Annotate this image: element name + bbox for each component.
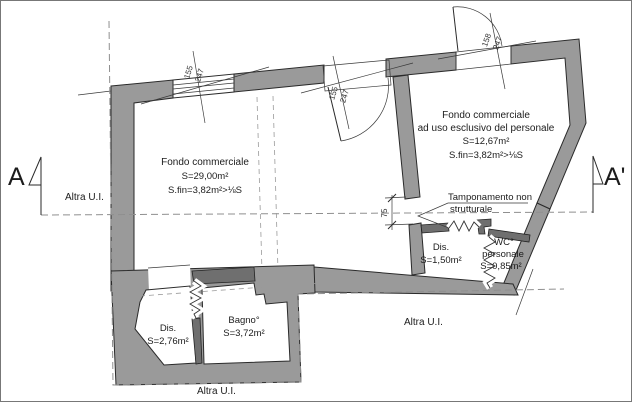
dim-wall-gap: 75 — [380, 208, 389, 217]
trace-line-vertical-2 — [273, 96, 278, 271]
wc-area: S=0,85m² — [480, 261, 521, 272]
trace-line-vertical-1 — [257, 97, 262, 272]
wall-extension-line — [78, 91, 111, 95]
room2-subtitle: ad uso esclusivo del personale — [418, 123, 555, 134]
dis2-area: S=2,76m² — [147, 336, 188, 347]
dis1-area: S=1,50m² — [420, 255, 461, 266]
tamponamento-line1: Tamponamento non — [448, 192, 532, 203]
bagno-name: Bagno° — [228, 315, 259, 326]
wall-top-between-rooms — [386, 52, 456, 77]
dim-door-staff-height: 247 — [491, 35, 504, 51]
tamponamento-line2: strutturale — [450, 204, 492, 215]
wall-west-topleft — [111, 80, 173, 291]
altra-ui-bottom: Altra U.I. — [197, 386, 236, 397]
room2-sfin: S.fin=3,82m²>⅛S — [449, 150, 523, 161]
section-label-a-prime: A' — [604, 163, 625, 191]
section-label-a: A — [8, 163, 25, 191]
wc-subtitle: personale — [482, 249, 524, 260]
section-marker-aprime-triangle — [593, 156, 603, 184]
bagno-area: S=3,72m² — [223, 328, 264, 339]
wall-dis1-north — [421, 223, 449, 233]
room2-name: Fondo commerciale — [442, 110, 530, 121]
dis2-name: Dis. — [160, 323, 176, 334]
wall-top-mid — [234, 65, 324, 92]
room2-area: S=12,67m² — [463, 136, 510, 147]
altra-ui-left: Altra U.I. — [65, 192, 104, 203]
dis1-name: Dis. — [433, 242, 449, 253]
wall-middle-partition — [393, 75, 420, 199]
dim-75-ext-top — [385, 197, 406, 198]
room1-sfin: S.fin=3,82m²>⅛S — [168, 185, 242, 196]
door-staff-frame — [456, 46, 511, 70]
floor-plan-canvas: A A' Altra U.I. Altra U.I. Altra U.I. Fo… — [0, 0, 632, 402]
wc-name: WC° — [494, 237, 514, 248]
room1-name: Fondo commerciale — [161, 157, 249, 168]
altra-ui-right: Altra U.I. — [404, 317, 443, 328]
door-staff-leaf — [453, 7, 458, 51]
section-marker-a-triangle — [29, 157, 41, 185]
room1-area: S=29,00m² — [182, 171, 229, 182]
floor-plan-drawing: A A' Altra U.I. Altra U.I. Altra U.I. Fo… — [1, 1, 631, 401]
dim-door-main-width: 155 — [327, 85, 340, 101]
